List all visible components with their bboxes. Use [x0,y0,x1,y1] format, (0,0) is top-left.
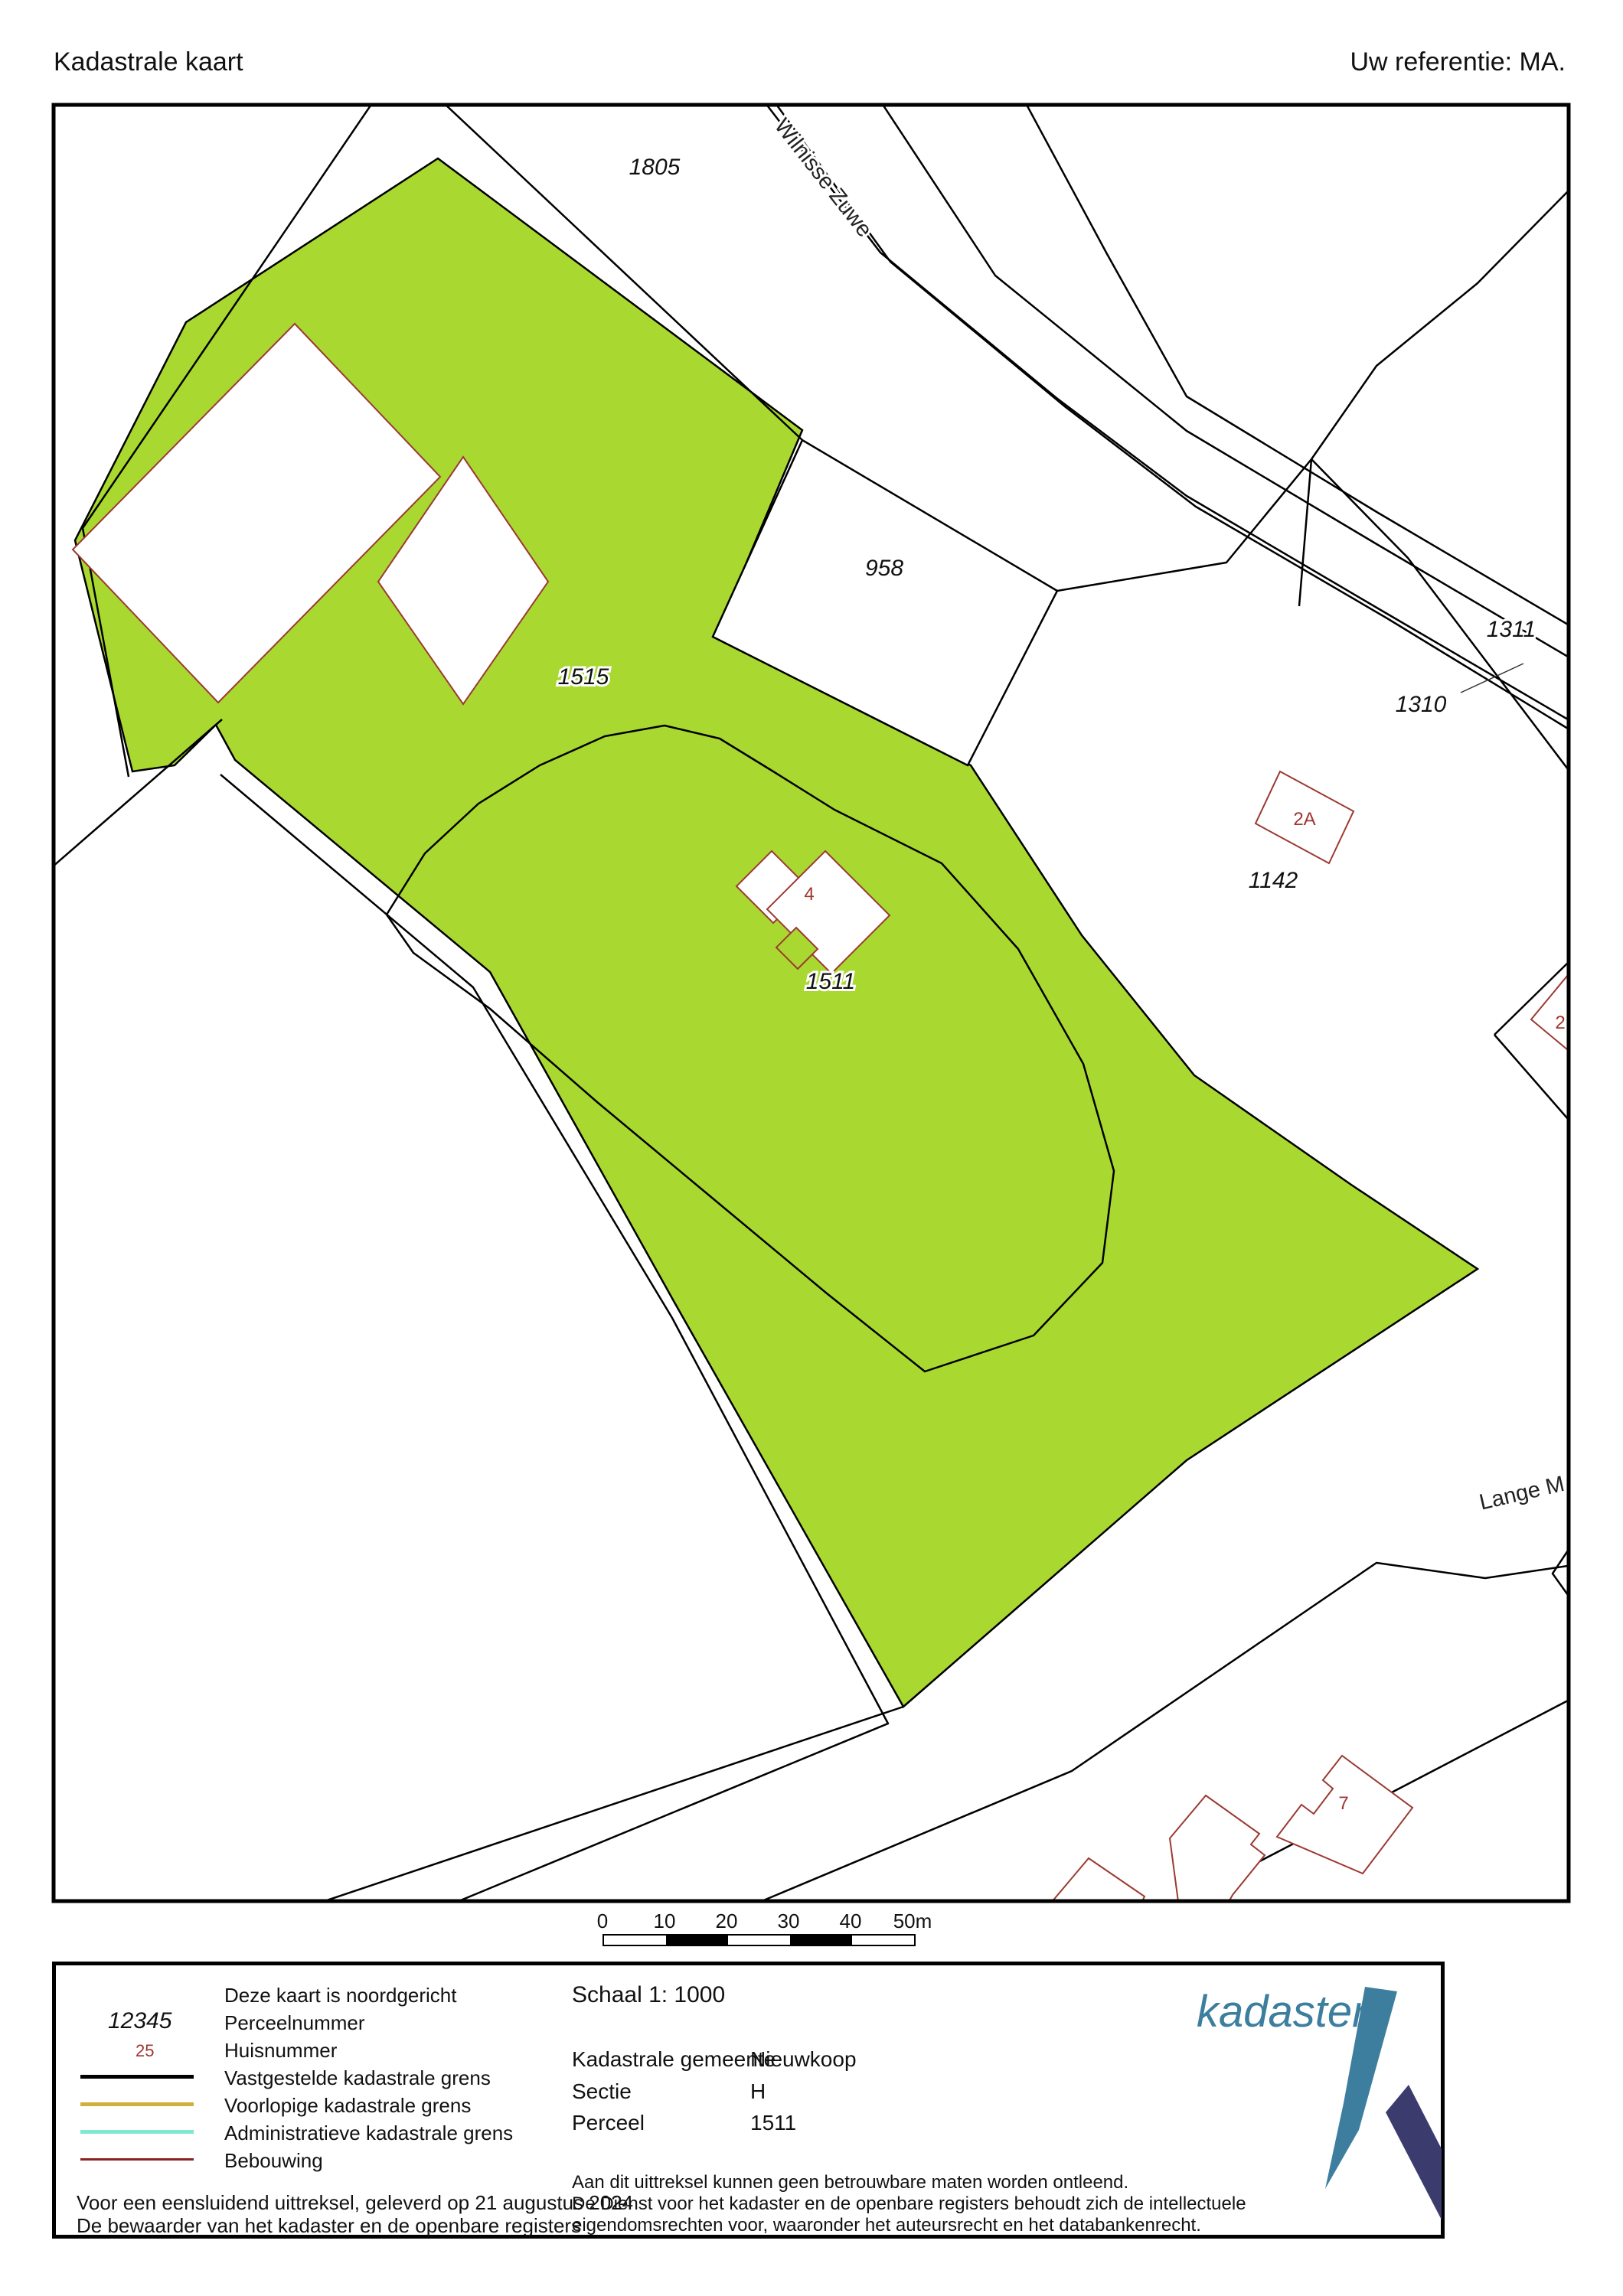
scalebar-segment [666,1936,728,1945]
scalebar-tick-10: 10 [654,1910,676,1933]
building-7 [1277,1756,1412,1874]
scalebar-tick-50m: 50m [893,1910,932,1933]
scalebar-segment [728,1936,790,1945]
legend-line-administratief-label: Administratieve kadastrale grens [224,2122,513,2145]
scalebar-segment [790,1936,852,1945]
parcel-label-1310: 1310 [1396,692,1447,717]
road-label-lange-m: Lange M [1477,1472,1566,1515]
legend-line-vastgesteld [80,2075,194,2079]
parcel-label-1805: 1805 [629,155,681,180]
legend-parcelnumber-label: Perceelnummer [224,2011,365,2035]
scalebar-tick-20: 20 [716,1910,738,1933]
building-partial-a [1170,1795,1265,1907]
building-2 [1531,966,1621,1058]
sectie-label: Sectie [572,2079,632,2104]
parcel-label-1511: 1511 [806,969,856,994]
scalebar [603,1934,916,1946]
legend-line-vastgesteld-label: Vastgestelde kadastrale grens [224,2066,491,2090]
road-lange-meentweg-notch [1553,1551,1568,1595]
legend-footer-1: Voor een eensluidend uittreksel, gelever… [77,2191,633,2215]
legend-north-note: Deze kaart is noordgericht [224,1984,456,2007]
legend-line-administratief [80,2130,194,2134]
legend-housenumber-label: Huisnummer [224,2039,337,2063]
parcel-label-958: 958 [865,556,903,581]
scale-text: Schaal 1: 1000 [572,1982,725,2008]
parcel-label-1311: 1311 [1487,617,1536,642]
kadaster-logo-mark-navy [1386,2085,1442,2229]
legend-line-bebouwing [80,2158,194,2161]
house-label-2: 2 [1555,1013,1565,1033]
scalebar-tick-40: 40 [840,1910,862,1933]
gemeente-value: Nieuwkoop [750,2047,857,2072]
house-label-7: 7 [1338,1793,1348,1814]
scalebar-segment [852,1936,914,1945]
boundary-tail-junction [318,1707,903,1903]
boundary-junction-cross [1299,459,1311,606]
map-canvas: 1805Wilnisse Zuwe9581515131113102A114241… [0,0,1623,2296]
legend-housenumber-sample: 25 [136,2041,154,2061]
disclaimer-line-3: eigendomsrechten voor, waaronder het aut… [572,2215,1201,2236]
boundary-parcel2-south [1494,1035,1568,1119]
road-label-wilnisse-zuwe: Wilnisse Zuwe [769,114,877,242]
disclaimer-line-1: Aan dit uittreksel kunnen geen betrouwba… [572,2172,1128,2193]
legend-box: Deze kaart is noordgericht 12345 Perceel… [52,1962,1445,2239]
boundary-northeast [1311,191,1568,459]
scalebar-segment [604,1936,666,1945]
kadaster-logo-text: kadaster [1197,1987,1369,2037]
parcel-label-1142: 1142 [1249,868,1298,893]
legend-line-voorlopig [80,2102,194,2106]
perceel-value: 1511 [750,2111,796,2135]
road-line-1 [1026,103,1568,625]
page: Kadastrale kaart Uw referentie: MA. 1805… [0,0,1623,2296]
legend-footer-2: De bewaarder van het kadaster en de open… [77,2214,581,2238]
boundary-junction-southeast [1311,459,1568,769]
house-label-4: 4 [804,884,814,905]
legend-parcelnumber-sample: 12345 [108,2008,171,2034]
kadaster-logo: kadaster [1135,1973,1442,2233]
legend-line-bebouwing-label: Bebouwing [224,2149,323,2173]
sectie-value: H [750,2079,766,2104]
parcel-label-1515: 1515 [558,664,609,690]
house-label-2a: 2A [1293,809,1315,830]
perceel-label: Perceel [572,2111,645,2135]
boundary-junction-west [1057,459,1311,591]
gemeente-label: Kadastrale gemeente [572,2047,776,2072]
scalebar-tick-0: 0 [597,1910,608,1933]
scalebar-tick-30: 30 [778,1910,800,1933]
legend-line-voorlopig-label: Voorlopige kadastrale grens [224,2094,471,2118]
